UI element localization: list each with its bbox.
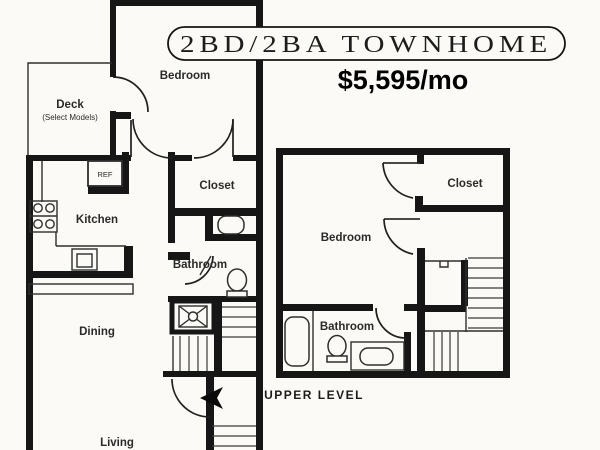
entry-door	[172, 379, 223, 417]
upper-closet-door	[383, 163, 420, 198]
deck-label: Deck	[56, 99, 84, 111]
kitchen-bar-counter	[29, 284, 133, 294]
floor-plan-page: Bedroom Deck (Select Models) Kitchen REF…	[0, 0, 600, 450]
deck-door-arc	[113, 77, 148, 112]
dining-label: Dining	[79, 326, 115, 338]
lower-bedroom-doors	[131, 119, 233, 158]
upper-vanity-sink	[360, 348, 393, 365]
living-label: Living	[100, 437, 134, 449]
kitchen-label: Kitchen	[76, 214, 118, 226]
toilet-tank	[227, 291, 247, 297]
toilet-bowl	[228, 269, 247, 291]
vanity-sink	[218, 216, 244, 234]
listing-title: 2BD/2BA TOWNHOME	[180, 32, 552, 58]
upper-bathroom-label: Bathroom	[320, 321, 374, 333]
refrigerator-label: REF	[98, 170, 113, 179]
deck-note: (Select Models)	[42, 113, 98, 122]
upper-bedroom-label: Bedroom	[321, 232, 371, 244]
monthly-rent: $5,595/mo	[338, 65, 469, 95]
bathtub	[285, 317, 309, 366]
lower-bathroom-label: Bathroom	[173, 259, 227, 271]
upper-closet-label: Closet	[447, 178, 482, 190]
upper-level-caption: UPPER LEVEL	[264, 388, 364, 402]
title-banner: 2BD/2BA TOWNHOME	[168, 27, 565, 60]
upper-toilet-tank	[327, 356, 347, 362]
lower-level-plan: Bedroom Deck (Select Models) Kitchen REF…	[26, 0, 263, 450]
upper-level-plan: Bedroom Closet Bathroom UPPER LEVEL	[264, 148, 510, 402]
upper-bathroom-door-arc	[376, 308, 406, 338]
kitchen-sink	[72, 249, 97, 270]
upper-bedroom-door	[384, 219, 420, 254]
floor-plan: Bedroom Deck (Select Models) Kitchen REF…	[0, 0, 600, 450]
upper-bathroom	[285, 311, 404, 371]
lower-closet-label: Closet	[199, 180, 234, 192]
lower-bathroom	[185, 216, 247, 297]
shower	[172, 301, 214, 332]
upper-toilet-bowl	[328, 336, 346, 357]
shower-drain	[189, 312, 198, 321]
lower-bedroom-label: Bedroom	[160, 70, 210, 82]
